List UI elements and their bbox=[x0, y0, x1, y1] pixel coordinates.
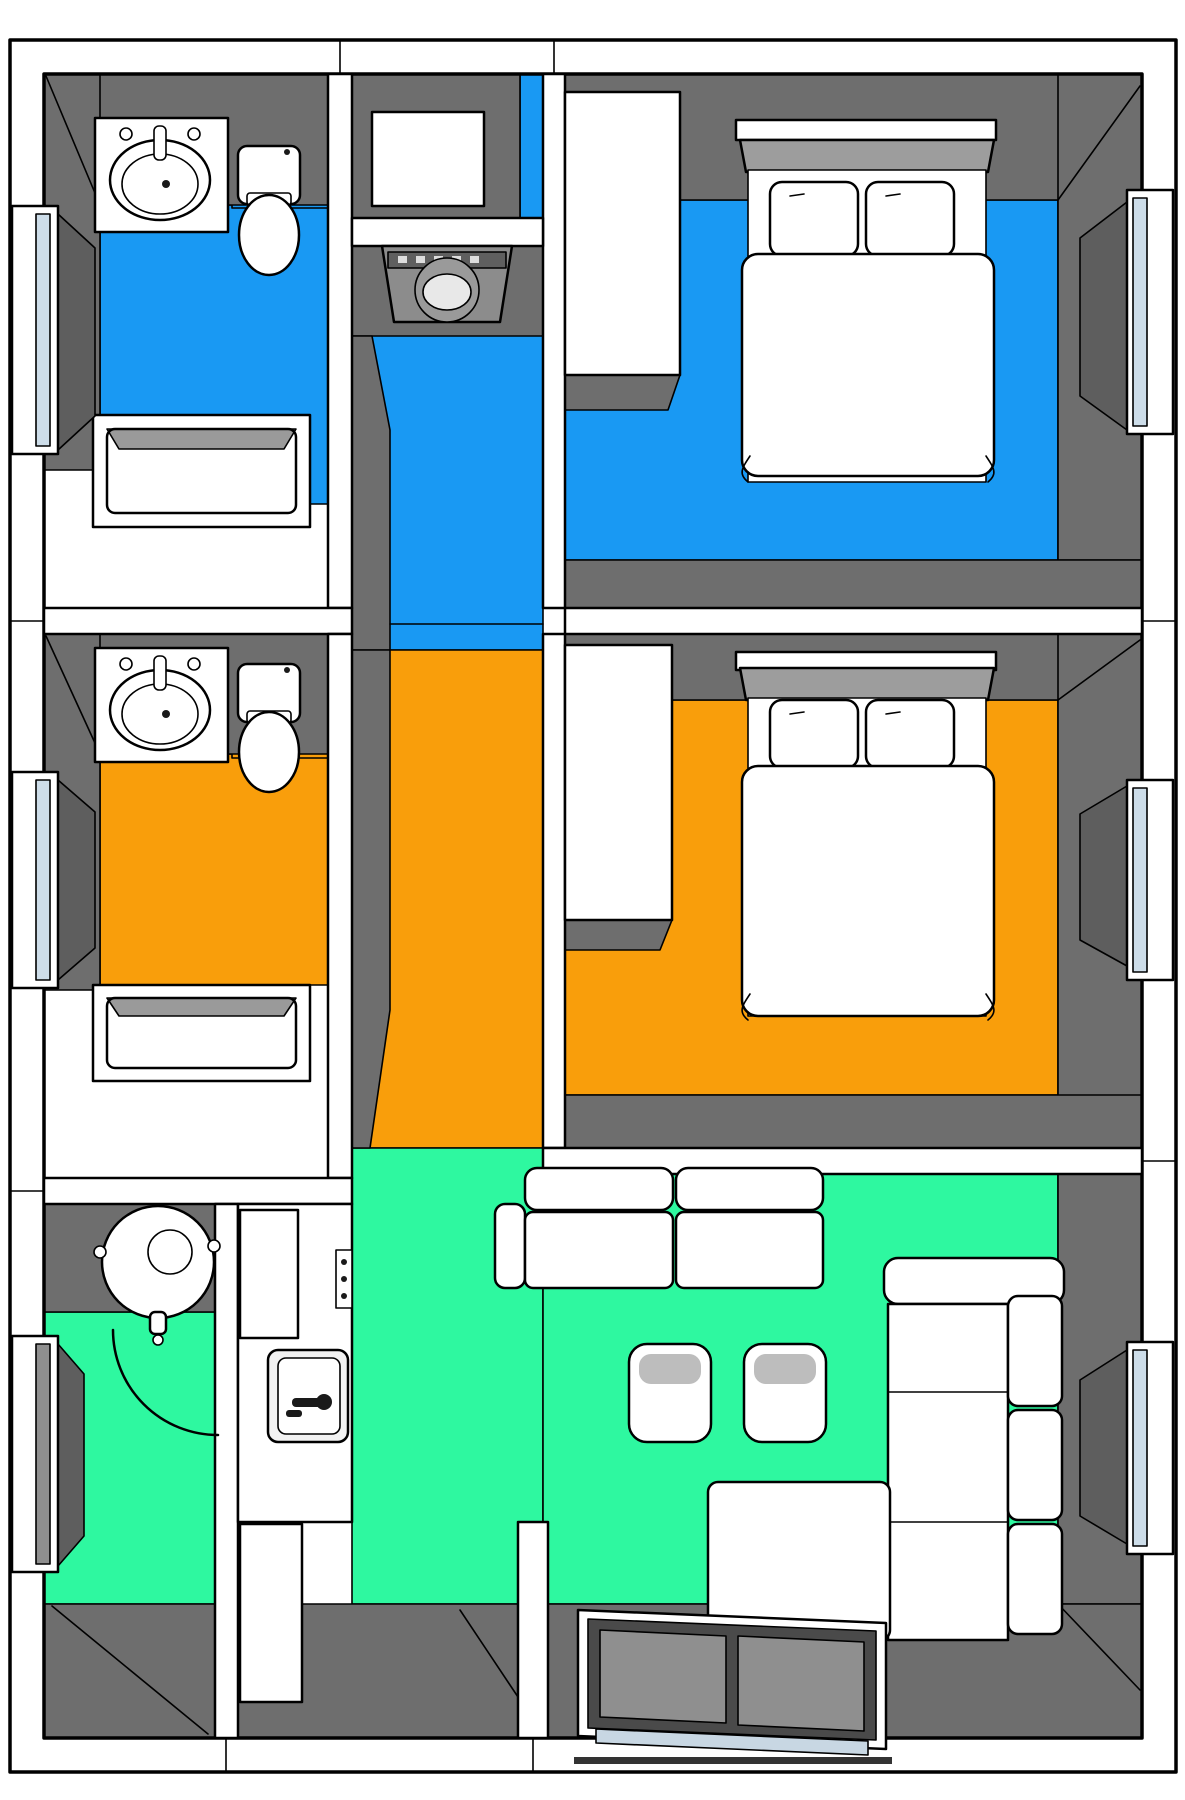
faucet-spout bbox=[154, 126, 166, 160]
bedroom-middle-south-face bbox=[565, 1095, 1142, 1148]
window-glass bbox=[1133, 198, 1147, 426]
bedroom-top-south-face bbox=[565, 560, 1142, 608]
entry-door-pane-right bbox=[738, 1636, 864, 1731]
washer-button bbox=[470, 256, 479, 263]
vanity-sink-top bbox=[95, 118, 228, 232]
window-frame bbox=[12, 1336, 58, 1572]
wall-middle-suite-kitchen bbox=[44, 1178, 352, 1204]
wall-entry-stub bbox=[518, 1522, 548, 1738]
window-bedroom-top bbox=[1127, 190, 1173, 434]
wall-corridor-bedroom-middle bbox=[543, 634, 565, 1148]
niche-divider-wall bbox=[352, 218, 543, 246]
shower-spout-tip bbox=[153, 1335, 163, 1345]
refrigerator bbox=[240, 1210, 298, 1338]
window-reveal bbox=[58, 1344, 84, 1566]
wall-shower-kitchen bbox=[215, 1204, 238, 1738]
wall-bathroom-middle-corridor bbox=[328, 634, 352, 1178]
floor-plan-svg bbox=[0, 0, 1185, 1800]
two-seat-sofa bbox=[495, 1168, 823, 1288]
pillow-right bbox=[866, 700, 954, 768]
bathtub-top bbox=[93, 415, 310, 527]
window-reveal bbox=[1080, 1350, 1127, 1544]
shower-handle-right bbox=[208, 1240, 220, 1252]
sofa-seat-cushion bbox=[676, 1212, 823, 1288]
sofa-back-cushion bbox=[676, 1168, 823, 1210]
shower-spout bbox=[150, 1312, 166, 1334]
pillow-left bbox=[770, 182, 858, 256]
window-bedroom-middle bbox=[1127, 780, 1173, 980]
faucet-handle-left bbox=[120, 658, 132, 670]
window-frame bbox=[12, 206, 58, 454]
bathtub-middle bbox=[93, 985, 310, 1081]
faucet-handle-left bbox=[120, 128, 132, 140]
faucet-handle-right bbox=[188, 658, 200, 670]
toilet-middle bbox=[238, 664, 300, 792]
corner-sofa-seat-vertical bbox=[888, 1304, 1008, 1640]
washer-button bbox=[416, 256, 425, 263]
entry-door-pane-left bbox=[600, 1630, 726, 1723]
corner-sofa-back-cushion bbox=[1008, 1524, 1062, 1634]
washing-machine bbox=[382, 246, 512, 322]
headboard bbox=[740, 140, 994, 172]
corridor-top-floor-sliver bbox=[520, 74, 543, 220]
sink-drain bbox=[162, 710, 170, 718]
faucet-spout bbox=[154, 656, 166, 690]
washer-button bbox=[398, 256, 407, 263]
window-bathroom-top bbox=[12, 206, 58, 454]
window-bathroom-middle bbox=[12, 772, 58, 988]
double-bed-middle bbox=[736, 652, 996, 1020]
window-glass bbox=[36, 780, 50, 980]
window-living-room bbox=[1127, 1342, 1173, 1554]
entry-door-track bbox=[574, 1757, 892, 1764]
toilet-top bbox=[238, 146, 300, 275]
headboard bbox=[740, 668, 994, 700]
vanity-sink-middle bbox=[95, 648, 228, 762]
sliding-entry-door bbox=[574, 1610, 892, 1764]
pillow-left bbox=[770, 700, 858, 768]
wall-between-suites-west bbox=[44, 608, 352, 634]
corner-sofa-back-cushion bbox=[1008, 1410, 1062, 1520]
sofa-back-cushion bbox=[525, 1168, 673, 1210]
wall-corridor-bedroom-top bbox=[543, 74, 565, 608]
window-glass bbox=[36, 214, 50, 446]
round-shower-basin bbox=[102, 1206, 214, 1318]
shower-handle-left bbox=[94, 1246, 106, 1258]
sofa-armrest bbox=[495, 1204, 525, 1288]
wardrobe-closet-top bbox=[565, 92, 680, 375]
window-shower-room bbox=[12, 1336, 58, 1572]
corner-sofa-back-cushion bbox=[1008, 1296, 1062, 1406]
base-cabinet bbox=[240, 1524, 302, 1702]
wardrobe-closet-middle bbox=[565, 645, 672, 920]
bathtub-inner-shadow bbox=[107, 429, 296, 449]
toilet-button bbox=[284, 149, 290, 155]
toilet-bowl bbox=[239, 195, 299, 275]
wall-between-suites-east bbox=[565, 608, 1142, 634]
sink-drain bbox=[162, 180, 170, 188]
toilet-button bbox=[284, 667, 290, 673]
closet-middle-shadow bbox=[565, 920, 672, 950]
closet-top-shadow bbox=[565, 375, 680, 410]
floor-plan-image bbox=[0, 0, 1185, 1800]
faucet-handle-right bbox=[188, 128, 200, 140]
window-reveal bbox=[1080, 202, 1127, 430]
sofa-seat-cushion bbox=[525, 1212, 673, 1288]
window-reveal bbox=[1080, 786, 1127, 966]
storage-cabinet-box bbox=[372, 112, 484, 206]
window-glass bbox=[1133, 788, 1147, 972]
duvet bbox=[742, 254, 994, 476]
window-reveal bbox=[58, 214, 95, 450]
cooktop-knob bbox=[341, 1259, 347, 1265]
ottoman-left-shadow bbox=[639, 1354, 701, 1384]
washer-drum-inner bbox=[423, 274, 471, 310]
pillow-right bbox=[866, 182, 954, 256]
kitchen-sink-basin bbox=[278, 1358, 340, 1434]
kitchen-faucet-spout bbox=[292, 1398, 324, 1407]
double-bed-top bbox=[736, 120, 996, 482]
window-frame bbox=[12, 772, 58, 988]
window-glass bbox=[36, 1344, 50, 1564]
duvet bbox=[742, 766, 994, 1016]
cooktop-knob bbox=[341, 1293, 347, 1299]
window-reveal bbox=[58, 780, 95, 980]
bathroom-middle-floor bbox=[100, 754, 328, 985]
bathtub-inner-shadow bbox=[107, 998, 296, 1016]
kitchen-faucet-handle bbox=[286, 1410, 302, 1417]
headboard-top-edge bbox=[736, 120, 996, 140]
window-glass bbox=[1133, 1350, 1147, 1546]
wall-bathroom-top-corridor bbox=[328, 74, 352, 608]
cooktop-knob bbox=[341, 1276, 347, 1282]
toilet-bowl bbox=[239, 712, 299, 792]
ottoman-right-shadow bbox=[754, 1354, 816, 1384]
